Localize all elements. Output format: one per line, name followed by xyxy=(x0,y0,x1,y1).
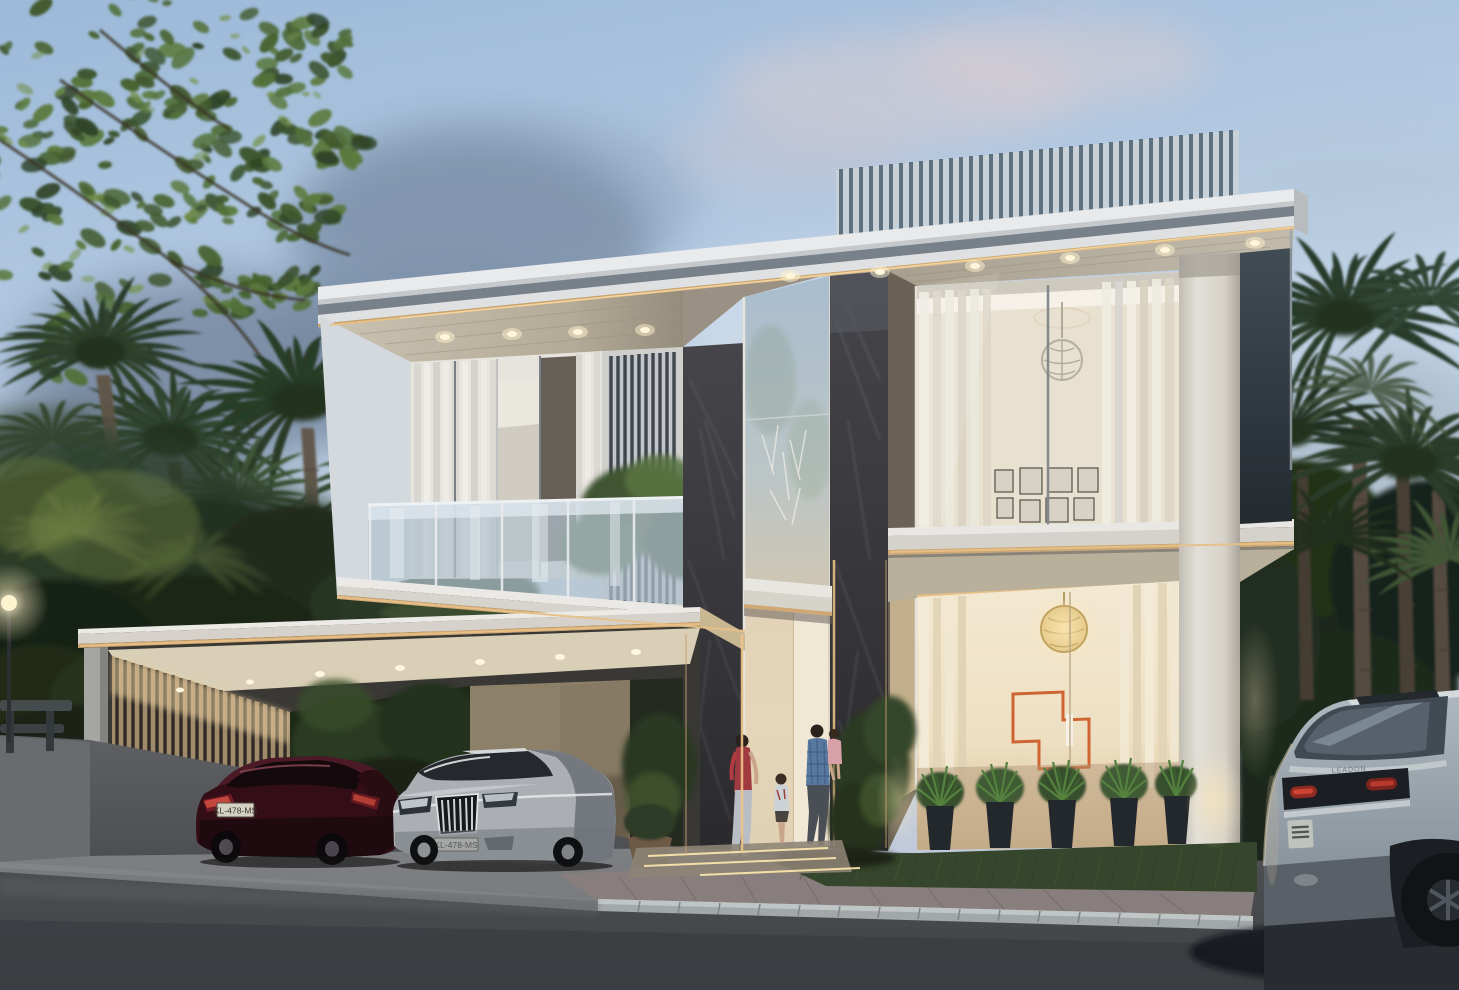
svg-text:KL-478-MS: KL-478-MS xyxy=(214,806,258,816)
